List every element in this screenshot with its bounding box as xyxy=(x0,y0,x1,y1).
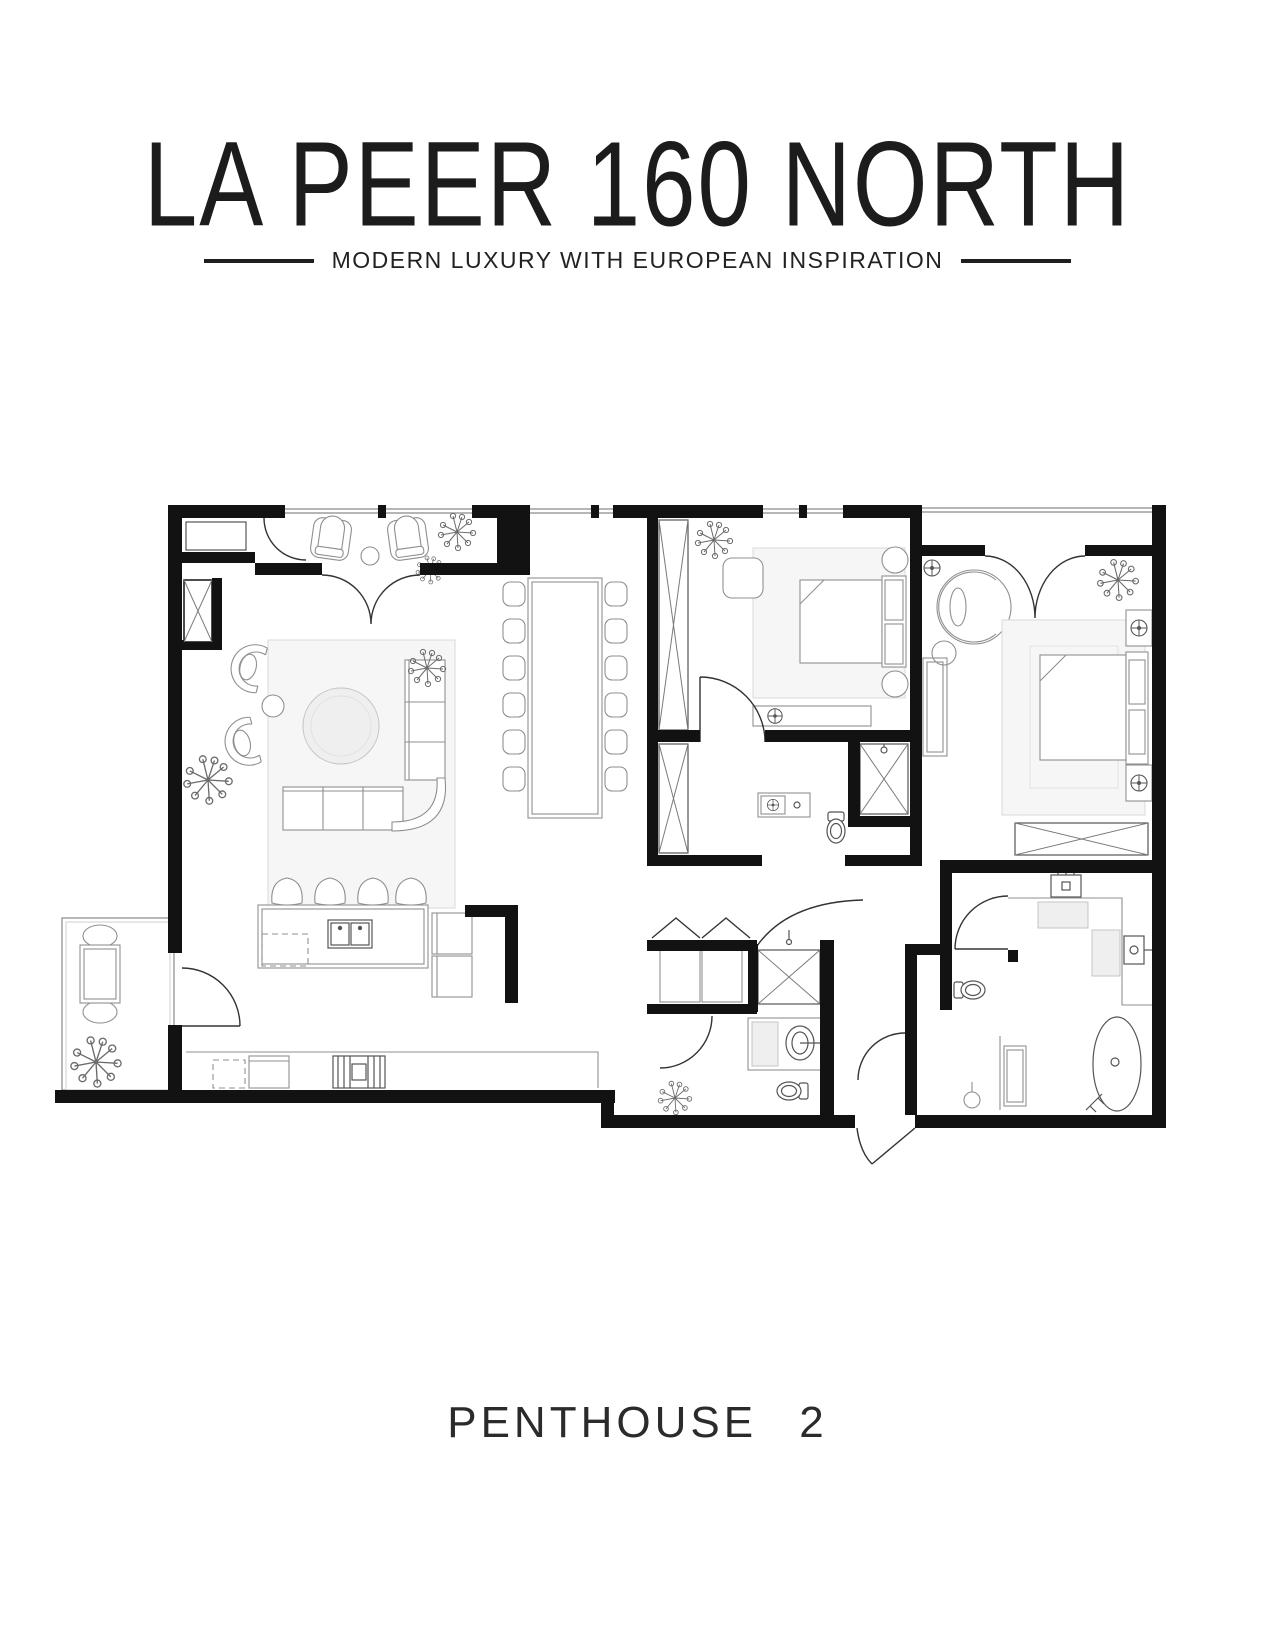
walk-in-closet xyxy=(652,918,750,1002)
appliance-slot xyxy=(213,1060,245,1088)
primary-bedroom xyxy=(1002,560,1152,855)
toilet xyxy=(954,981,985,999)
foyer-double-door xyxy=(322,575,420,624)
bathroom-2 xyxy=(758,744,908,843)
balcony-door xyxy=(182,968,240,1026)
living-room xyxy=(184,640,455,908)
vanity-basin xyxy=(1124,936,1152,964)
primary-bed xyxy=(1040,652,1148,764)
foyer-chair xyxy=(309,514,353,562)
balcony-railing xyxy=(62,918,174,1090)
corridor-door xyxy=(757,900,863,946)
primary-bathroom xyxy=(954,868,1152,1112)
plant-icon xyxy=(184,756,232,804)
round-chair xyxy=(932,570,1011,665)
dining-area xyxy=(503,578,627,818)
balcony xyxy=(71,925,121,1087)
accent-chair xyxy=(226,640,268,694)
water-closet-door xyxy=(955,896,1008,949)
plant-icon xyxy=(71,1037,121,1087)
brochure-page: LA PEER 160 NORTH MODERN LUXURY WITH EUR… xyxy=(0,0,1275,1650)
plant-icon xyxy=(1098,560,1139,601)
tagline-rule-right xyxy=(961,259,1071,263)
unit-label: PENTHOUSE 2 xyxy=(0,1398,1275,1448)
wardrobe-closet xyxy=(659,520,688,853)
hall-door xyxy=(858,1033,905,1080)
side-table xyxy=(262,695,284,717)
kitchen xyxy=(186,878,598,1088)
toilet xyxy=(827,812,845,843)
shower xyxy=(860,744,908,814)
vanity-sink xyxy=(758,793,810,817)
tagline-text: MODERN LUXURY WITH EUROPEAN INSPIRATION xyxy=(332,247,944,274)
refrigerator xyxy=(432,913,472,997)
bench xyxy=(1000,1036,1026,1110)
powder-door xyxy=(660,1016,712,1068)
tagline-row: MODERN LUXURY WITH EUROPEAN INSPIRATION xyxy=(0,247,1275,274)
powder-room xyxy=(658,1018,832,1115)
suite-hallway xyxy=(923,560,1011,756)
accent-chair xyxy=(220,716,262,770)
tagline-rule-left xyxy=(204,259,314,263)
shower-2 xyxy=(758,930,820,1004)
primary-double-door xyxy=(985,556,1085,618)
primary-suite xyxy=(923,560,1152,1112)
dresser-bench xyxy=(1015,823,1148,855)
page-title: LA PEER 160 NORTH xyxy=(0,116,1275,255)
closet-door-arc xyxy=(264,518,306,560)
side-table xyxy=(723,558,763,598)
bathtub xyxy=(1086,1017,1141,1112)
entry-closet xyxy=(186,522,246,550)
foyer-table xyxy=(361,547,379,565)
plant-icon xyxy=(658,1081,691,1114)
coffee-table xyxy=(303,688,379,764)
floor-plan xyxy=(50,495,1175,1185)
entry-door xyxy=(857,1128,915,1164)
towel-stand xyxy=(964,1082,980,1108)
toilet xyxy=(777,1082,808,1100)
range xyxy=(333,1056,385,1088)
counter-edge xyxy=(186,1052,598,1088)
plant-icon xyxy=(438,513,475,550)
island-sink xyxy=(328,920,372,948)
plant-icon xyxy=(695,521,732,558)
dining-table xyxy=(528,578,602,818)
media-console xyxy=(753,706,871,726)
foyer-chair xyxy=(386,514,430,562)
